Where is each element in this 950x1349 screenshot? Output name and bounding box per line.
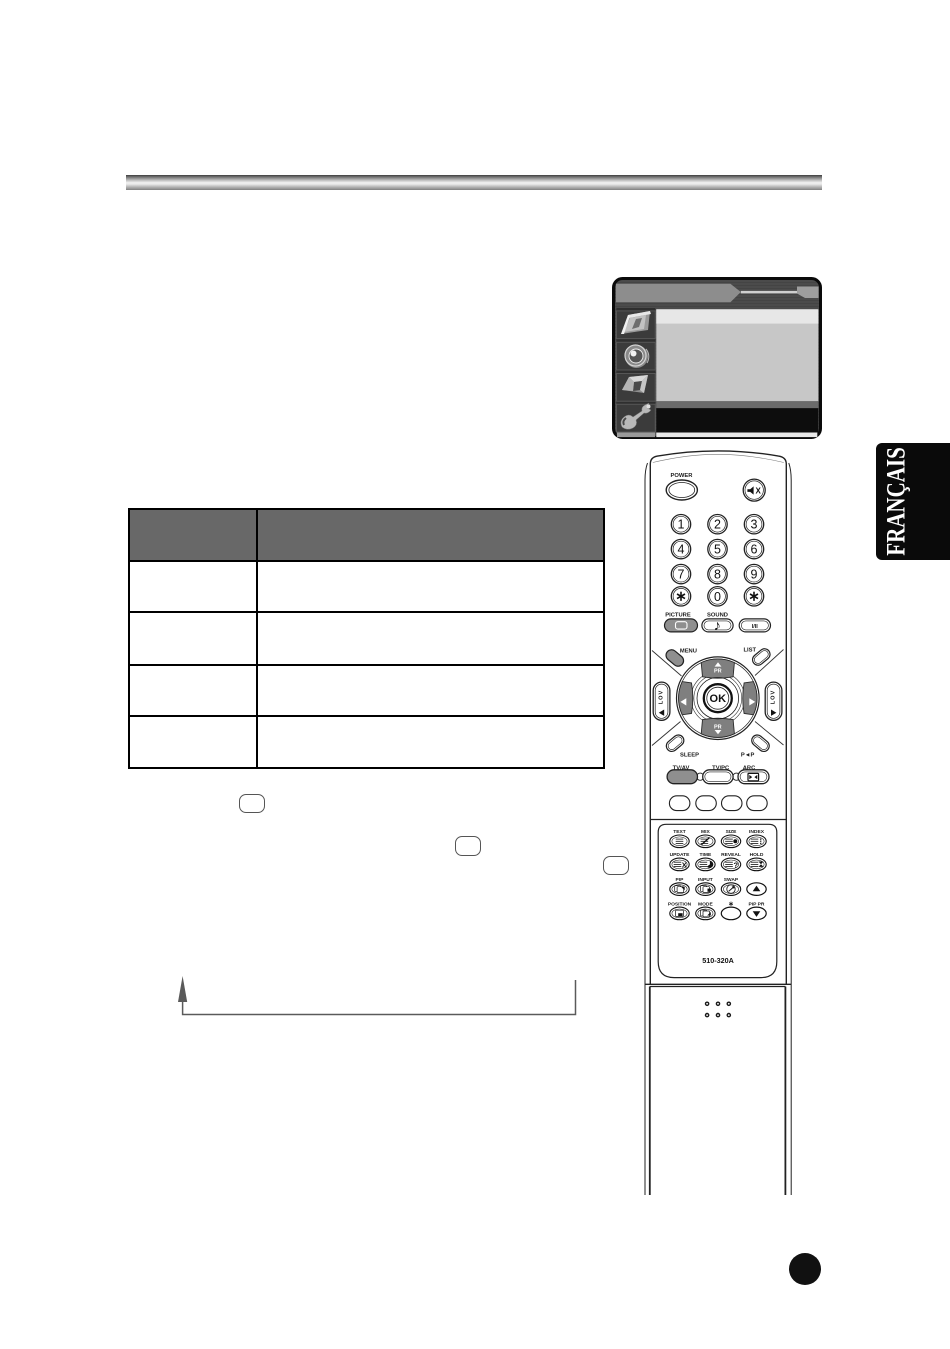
svg-text:3: 3 xyxy=(751,518,758,532)
svg-text:?: ? xyxy=(734,860,739,869)
svg-text:INDEX: INDEX xyxy=(749,829,765,835)
svg-text:I/II: I/II xyxy=(752,624,758,630)
svg-text:LOV: LOV xyxy=(659,690,665,705)
svg-text:510-320A: 510-320A xyxy=(702,956,734,965)
svg-text:X: X xyxy=(682,860,687,869)
svg-text:POWER: POWER xyxy=(671,473,694,479)
svg-text:MENU: MENU xyxy=(680,649,697,655)
svg-text:LIST: LIST xyxy=(744,648,757,654)
svg-text:1: 1 xyxy=(678,518,685,532)
svg-text:TIME: TIME xyxy=(700,852,712,858)
svg-text:PICTURE: PICTURE xyxy=(665,612,691,618)
svg-text:LOV: LOV xyxy=(771,690,777,705)
svg-text:♪: ♪ xyxy=(714,618,721,634)
svg-text:7: 7 xyxy=(678,568,685,582)
svg-text:4: 4 xyxy=(678,543,685,557)
svg-text:2: 2 xyxy=(714,518,721,532)
svg-text:HOLD: HOLD xyxy=(750,852,764,858)
svg-text:P◄P: P◄P xyxy=(741,753,755,759)
svg-text:SIZE: SIZE xyxy=(726,829,738,835)
svg-text:PR: PR xyxy=(714,669,722,675)
svg-text:9: 9 xyxy=(751,568,758,582)
svg-text:5: 5 xyxy=(714,543,721,557)
svg-text:MIX: MIX xyxy=(701,829,710,835)
svg-text:X: X xyxy=(756,487,762,496)
svg-text:PR: PR xyxy=(714,725,722,731)
svg-text:REVEAL: REVEAL xyxy=(721,852,741,858)
svg-text:OK: OK xyxy=(710,693,727,705)
svg-text:TEXT: TEXT xyxy=(673,829,686,835)
svg-text:8: 8 xyxy=(714,568,721,582)
svg-text:SLEEP: SLEEP xyxy=(680,753,699,759)
svg-text:UPDATE: UPDATE xyxy=(670,852,690,858)
svg-text:6: 6 xyxy=(751,543,758,557)
svg-text:0: 0 xyxy=(714,590,721,604)
